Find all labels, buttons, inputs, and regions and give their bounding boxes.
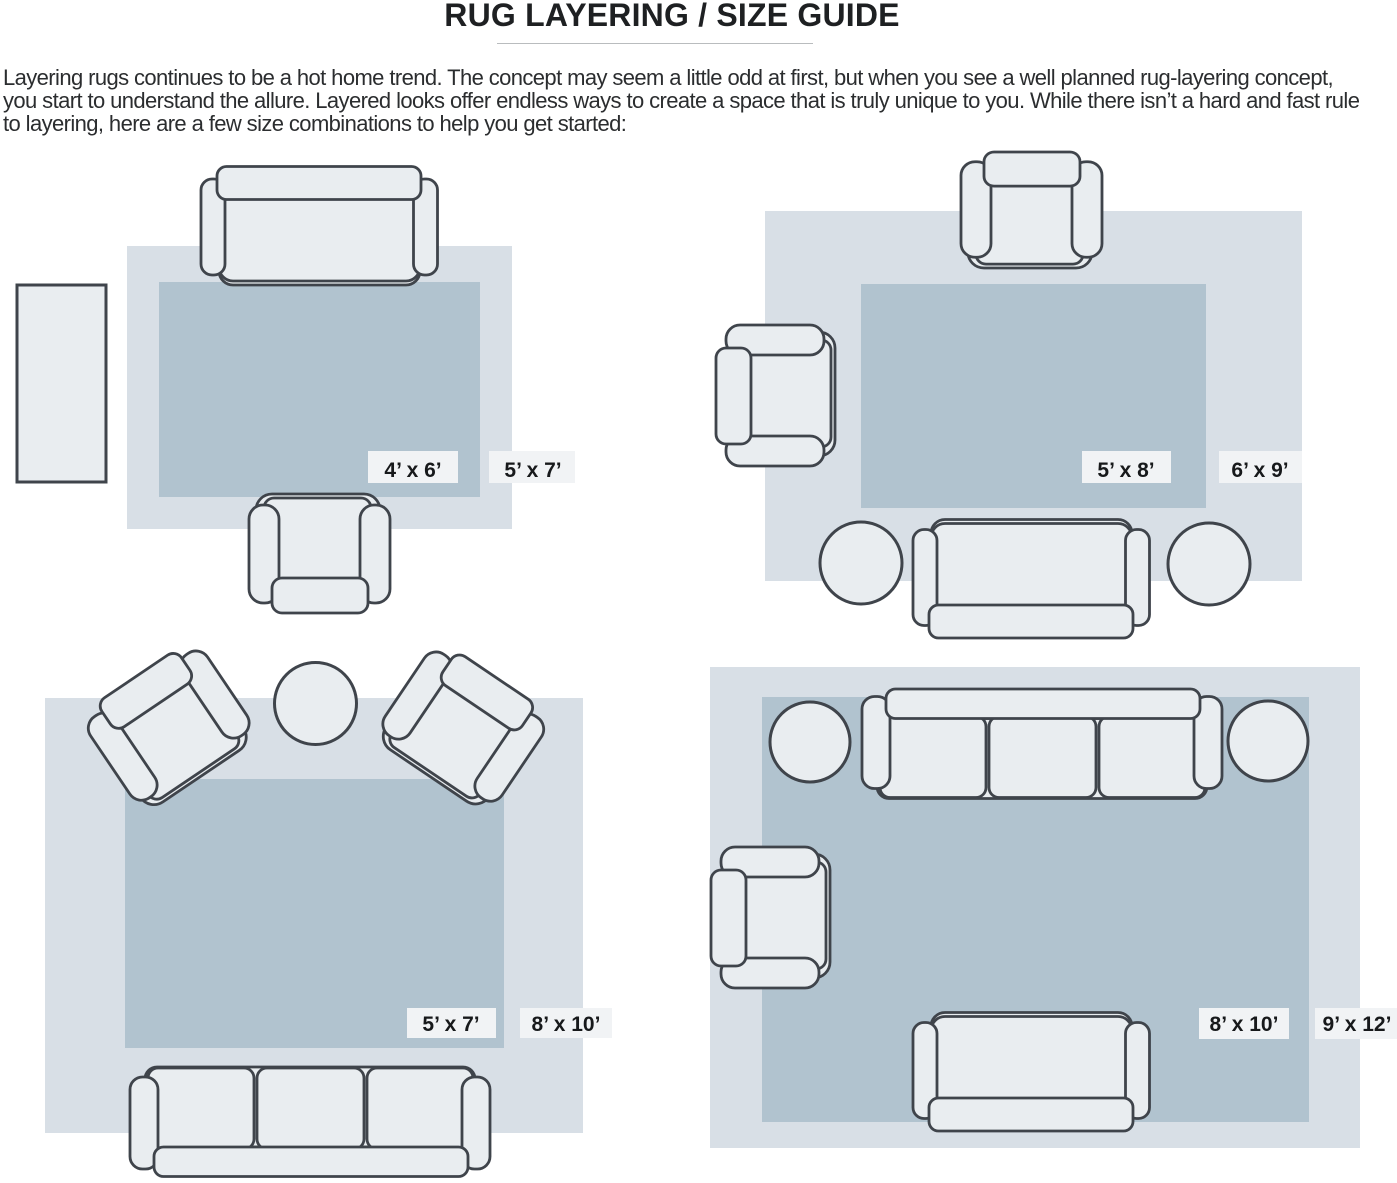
svg-text:5’ x 7’: 5’ x 7’ xyxy=(422,1013,479,1036)
svg-text:6’ x 9’: 6’ x 9’ xyxy=(1231,459,1288,482)
svg-text:8’ x 10’: 8’ x 10’ xyxy=(532,1013,601,1036)
svg-text:8’ x 10’: 8’ x 10’ xyxy=(1210,1013,1279,1036)
svg-text:9’ x 12’: 9’ x 12’ xyxy=(1323,1013,1392,1036)
svg-text:4’ x 6’: 4’ x 6’ xyxy=(384,459,441,482)
svg-text:5’ x 8’: 5’ x 8’ xyxy=(1097,459,1154,482)
svg-text:5’ x 7’: 5’ x 7’ xyxy=(504,459,561,482)
